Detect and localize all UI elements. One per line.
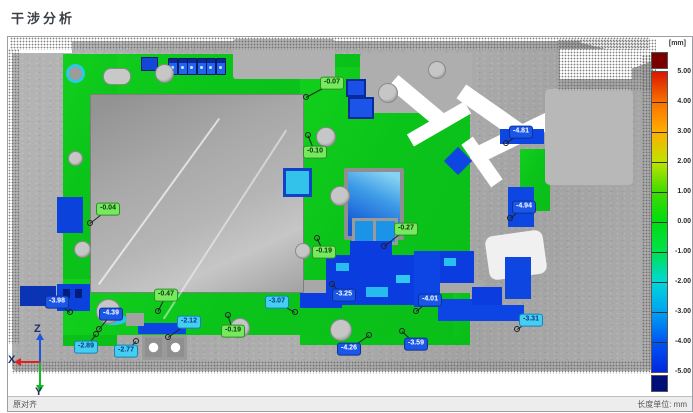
scan-fragment [75,289,82,298]
scan-fragment [505,257,531,299]
annotation-point [93,331,99,337]
cylinder-component [295,243,311,259]
connector-pin [187,58,197,75]
measurement-annotation[interactable]: -2.12 [177,316,201,329]
colorbar-overflow-bottom-swatch [651,375,668,392]
annotation-point [514,326,520,332]
colorbar-tick [652,342,667,343]
cylinder-component [316,127,336,147]
y-axis-arrow [39,363,41,385]
annotation-point [67,309,73,315]
axis-triad: X Z Y [8,317,78,397]
colorbar-tick-label: -3.00 [670,308,691,315]
scan-fragment [366,287,388,297]
annotation-point [503,140,509,146]
measurement-annotation[interactable]: -4.01 [418,294,442,307]
colorbar-gradient: 5.004.003.002.001.000.00-1.00-2.00-3.00-… [651,71,668,373]
cylinder-component [68,151,83,166]
colorbar-tick-label: -5.00 [670,368,691,375]
status-alignment-label: 原对齐 [13,399,37,410]
colorbar-tick-label: 4.00 [670,98,691,105]
status-bar: 原对齐 长度单位: mm [8,396,692,411]
colorbar-tick-label: 5.00 [670,68,691,75]
shield-component [90,94,304,293]
measurement-annotation[interactable]: -3.59 [404,338,428,351]
scan-noise [8,49,19,344]
colorbar-tick-label: -1.00 [670,248,691,255]
measurement-annotation[interactable]: -4.26 [337,343,361,356]
y-axis-label: Y [35,386,42,397]
z-axis-label: Z [34,323,41,335]
measurement-annotation[interactable]: -0.07 [320,77,344,90]
page-title: 干涉分析 [11,8,75,27]
colorbar-tick [652,252,667,253]
scan-fragment [346,79,366,97]
scan-noise [12,361,654,374]
cyan-ring-component [66,64,85,83]
cylinder-component [378,83,398,103]
x-axis-label: X [8,354,15,366]
scan-fragment [336,263,349,271]
scan-noise [10,37,650,50]
scan-fragment [438,305,524,321]
annotation-point [314,235,320,241]
annotation-point [225,312,231,318]
scan-fragment [348,97,374,119]
annotation-point [155,308,161,314]
colorbar-tick [652,192,667,193]
measurement-annotation[interactable]: -3.98 [45,296,69,309]
measurement-annotation[interactable]: -3.31 [519,314,543,327]
3d-viewport[interactable]: X Z Y -0.07-0.10-0.04-0.27-0.19-0.47-0.1… [7,36,693,412]
measurement-annotation[interactable]: -3.25 [332,289,356,302]
measurement-annotation[interactable]: -4.39 [99,308,123,321]
scan-fragment [57,197,83,233]
colorbar-tick-label: -4.00 [670,338,691,345]
scan-fragment [103,68,131,85]
scan-fragment [444,258,456,266]
colorbar-tick-label: 3.00 [670,128,691,135]
status-unit-label: 长度单位: mm [637,399,687,410]
annotation-point [303,94,309,100]
colorbar-overflow-top-swatch [651,52,668,69]
colorbar-tick-label: 0.00 [670,218,691,225]
colorbar-tick-label: -2.00 [670,278,691,285]
measurement-annotation[interactable]: -0.19 [221,325,245,338]
connector-pin [216,58,226,75]
app-window: 干涉分析 X Z Y -0.07-0.10-0.04-0.27-0.19-0.4… [0,0,693,413]
cylinder-component [330,186,350,206]
colorbar-tick [652,282,667,283]
annotation-point [507,215,513,221]
scan-fragment [440,251,474,283]
annotation-point [133,338,139,344]
annotation-point [366,332,372,338]
measurement-annotation[interactable]: -2.89 [74,341,98,354]
x-axis-arrow [20,361,40,363]
connector-pin [206,58,216,75]
scan-fragment [396,275,410,283]
measurement-annotation[interactable]: -4.81 [509,126,533,139]
colorbar-tick [652,102,667,103]
scan-fragment [283,168,312,197]
measurement-annotation[interactable]: -4.94 [512,201,536,214]
annotation-point [381,243,387,249]
annotation-point [305,132,311,138]
cylinder-component [155,64,174,83]
z-axis-arrow [39,339,41,362]
annotation-point [413,308,419,314]
scan-fragment [545,89,633,185]
measurement-annotation[interactable]: -2.77 [114,345,138,358]
annotation-point [399,328,405,334]
annotation-point [87,220,93,226]
connector-pin [178,58,188,75]
cylinder-component [74,241,91,258]
colorbar-tick [652,312,667,313]
measurement-annotation[interactable]: -0.19 [312,246,336,259]
colorbar-tick-label: 2.00 [670,158,691,165]
measurement-annotation[interactable]: -0.47 [154,289,178,302]
measurement-annotation[interactable]: -0.27 [394,223,418,236]
colorbar-tick [652,222,667,223]
annotation-point [329,281,335,287]
measurement-annotation[interactable]: -3.07 [265,296,289,309]
colorbar-tick [652,162,667,163]
colorbar-tick-label: 1.00 [670,188,691,195]
annotation-point [292,309,298,315]
annotation-point [165,334,171,340]
cylinder-component [330,319,352,341]
scan-fragment [142,335,165,360]
scan-scene[interactable]: X Z Y -0.07-0.10-0.04-0.27-0.19-0.47-0.1… [8,37,692,397]
colorbar-unit-label: [mm] [649,40,689,50]
cylinder-component [428,61,446,79]
connector-pin [197,58,207,75]
measurement-annotation[interactable]: -0.10 [303,146,327,159]
measurement-annotation[interactable]: -0.04 [96,203,120,216]
colorbar-legend: [mm] 5.004.003.002.001.000.00-1.00-2.00-… [649,40,689,394]
scan-fragment [126,313,144,326]
colorbar-tick [652,132,667,133]
